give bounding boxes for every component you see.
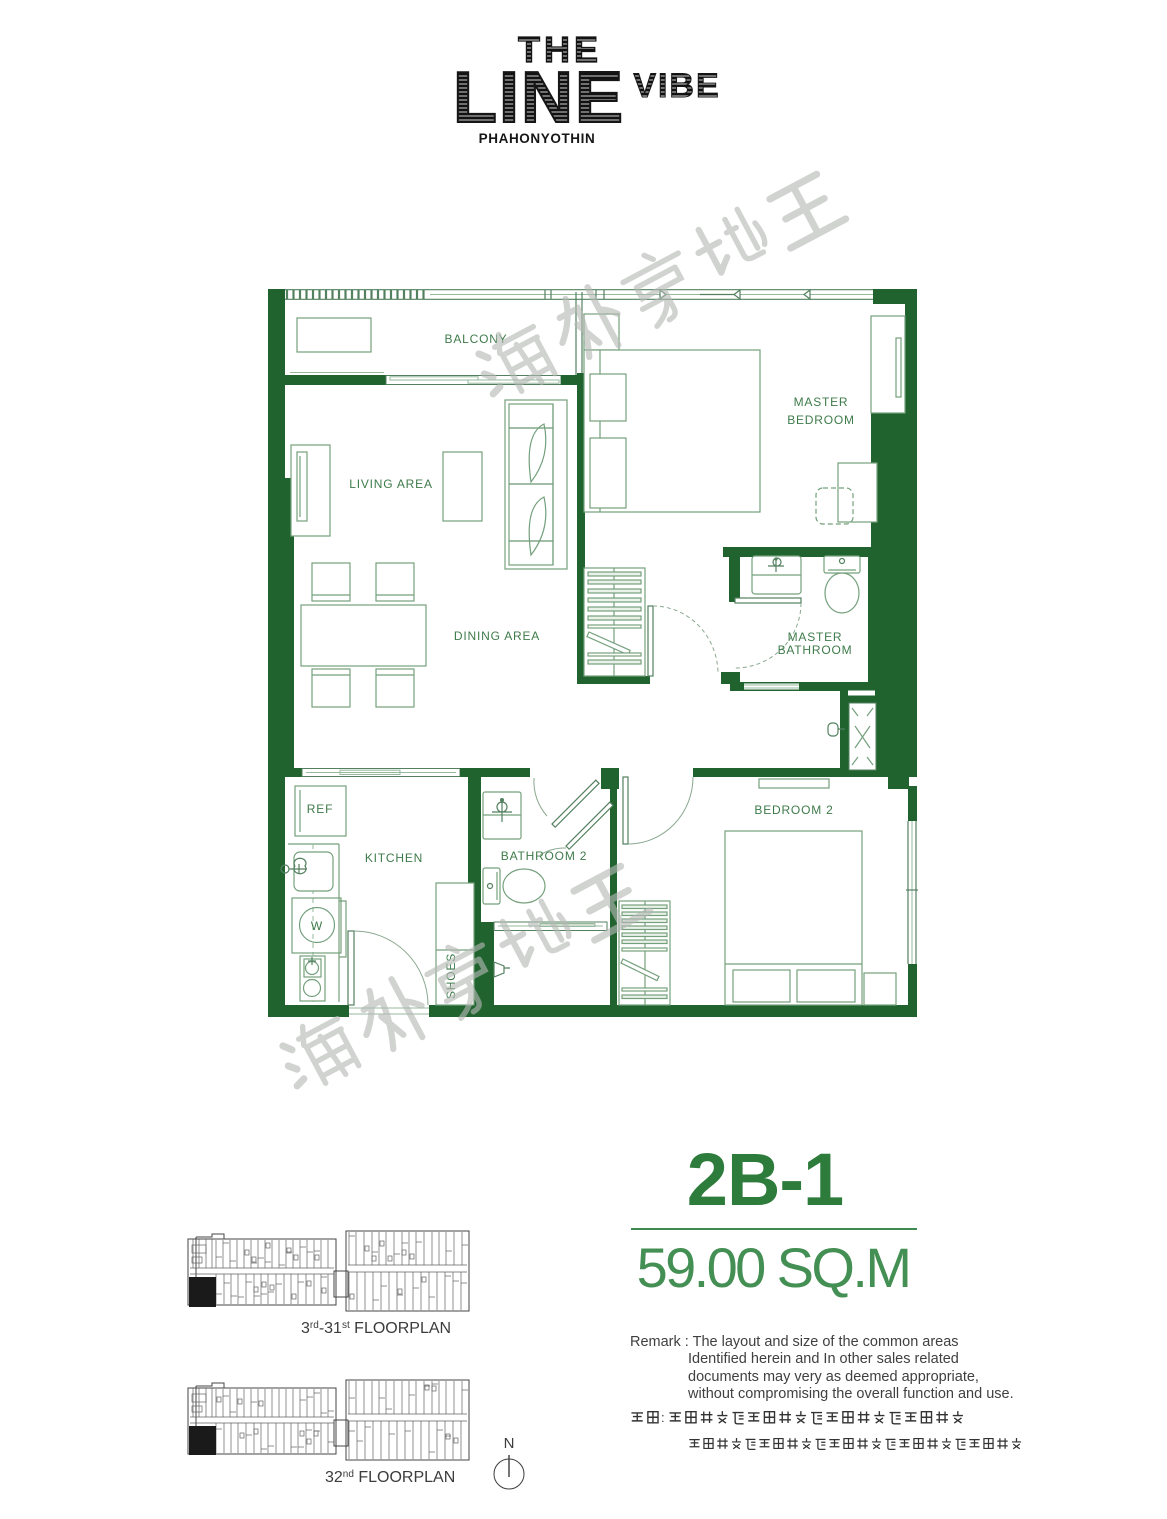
svg-text:3rd-31st FLOORPLAN: 3rd-31st FLOORPLAN — [301, 1320, 451, 1337]
svg-text::: : — [661, 1410, 665, 1425]
svg-text:32nd FLOORPLAN: 32nd FLOORPLAN — [325, 1469, 455, 1486]
svg-text:N: N — [504, 1435, 515, 1452]
svg-text:Identified herein and In other: Identified herein and In other sales rel… — [688, 1351, 959, 1367]
svg-text:BEDROOM: BEDROOM — [787, 413, 855, 427]
svg-text:KITCHEN: KITCHEN — [365, 851, 423, 865]
svg-text:without compromising the overa: without compromising the overall functio… — [687, 1386, 1014, 1402]
svg-text:PHAHONYOTHIN: PHAHONYOTHIN — [479, 131, 596, 146]
svg-text:VIBE: VIBE — [633, 67, 720, 105]
svg-text:2B-1: 2B-1 — [687, 1138, 843, 1221]
svg-text:MASTER: MASTER — [788, 630, 843, 644]
svg-text:MASTER: MASTER — [794, 395, 849, 409]
svg-text:DINING AREA: DINING AREA — [454, 629, 540, 643]
svg-text:LIVING AREA: LIVING AREA — [349, 477, 433, 491]
svg-text:LINE: LINE — [453, 58, 625, 138]
svg-text:W: W — [311, 919, 323, 933]
svg-text:BEDROOM 2: BEDROOM 2 — [754, 803, 833, 817]
svg-text:Remark : The layout and size o: Remark : The layout and size of the comm… — [630, 1334, 959, 1350]
svg-text:documents may very as deemed a: documents may very as deemed appropriate… — [688, 1369, 979, 1385]
svg-text:REF: REF — [307, 802, 333, 816]
svg-text:BATHROOM 2: BATHROOM 2 — [501, 849, 587, 863]
svg-text:BATHROOM: BATHROOM — [778, 643, 853, 657]
svg-text:59.00 SQ.M: 59.00 SQ.M — [637, 1236, 910, 1299]
